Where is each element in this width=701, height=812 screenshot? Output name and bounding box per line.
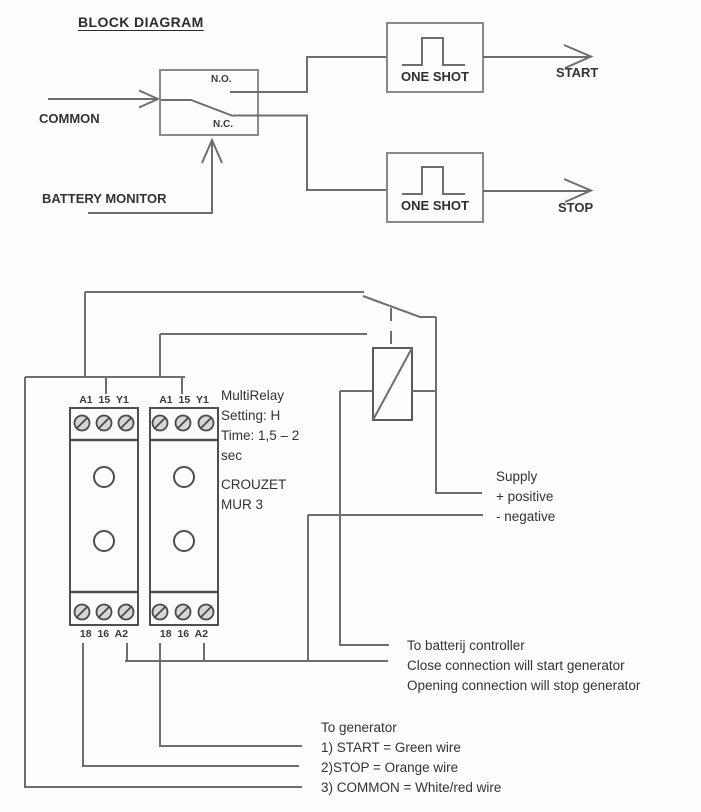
- module1-bottom-terminals: 18 16 A2: [70, 628, 138, 640]
- supply-line: - negative: [496, 507, 555, 527]
- common-label: COMMON: [39, 111, 100, 126]
- module-hole: [174, 467, 194, 487]
- terminal-block-separators: [70, 440, 218, 592]
- page-title: BLOCK DIAGRAM: [78, 14, 204, 30]
- note-line: Setting: H: [221, 406, 299, 426]
- terminal-drops: [106, 377, 182, 394]
- stop-label: STOP: [558, 200, 593, 215]
- contact-box: [160, 70, 258, 135]
- supply-labels: Supply + positive - negative: [496, 467, 555, 527]
- battery-line: Close connection will start generator: [407, 656, 640, 676]
- module2-bottom-terminals: 18 16 A2: [150, 628, 218, 640]
- wire-a1-module2: [160, 334, 367, 377]
- relay-switch-blade: [363, 296, 436, 317]
- no-contact-label: N.O.: [211, 74, 232, 85]
- module-hole: [94, 467, 114, 487]
- scanned-relay-diagram: BLOCK DIAGRAM N.O. N.C. COMMON BATTERY M…: [0, 0, 701, 812]
- note-line: MUR 3: [221, 495, 299, 515]
- module-hole: [174, 531, 194, 551]
- a2-drops: [127, 643, 204, 661]
- start-green-wire: [160, 643, 302, 746]
- screw-terminals: [75, 416, 214, 620]
- no-wire: [230, 57, 387, 92]
- generator-line: 2)STOP = Orange wire: [321, 758, 501, 778]
- note-line: MultiRelay: [221, 386, 299, 406]
- generator-labels: To generator 1) START = Green wire 2)STO…: [321, 718, 501, 798]
- start-label: START: [556, 65, 598, 80]
- one-shot-stop-label: ONE SHOT: [387, 198, 483, 213]
- relay-note: MultiRelay Setting: H Time: 1,5 – 2 sec …: [221, 386, 299, 515]
- generator-line: To generator: [321, 718, 501, 738]
- note-line: sec: [221, 446, 299, 466]
- module1-top-terminals: A1 15 Y1: [70, 394, 138, 406]
- battery-controller-wire: [340, 391, 389, 645]
- pulse-icon: [402, 167, 465, 194]
- battery-monitor-label: BATTERY MONITOR: [42, 191, 166, 206]
- screw-slots: [77, 418, 211, 617]
- nc-contact-label: N.C.: [213, 119, 233, 130]
- contact-blade: [161, 100, 233, 116]
- pulse-icon: [402, 38, 465, 65]
- battery-line: Opening connection will stop generator: [407, 676, 640, 696]
- relay-coil-diagonal: [373, 348, 412, 420]
- relay-modules: [70, 408, 218, 625]
- module-hole: [94, 531, 114, 551]
- supply-line: + positive: [496, 487, 555, 507]
- supply-line: Supply: [496, 467, 555, 487]
- one-shot-start-label: ONE SHOT: [387, 69, 483, 84]
- battery-line: To batterij controller: [407, 636, 640, 656]
- supply-positive-wire: [436, 317, 482, 493]
- nc-wire: [233, 116, 387, 191]
- note-line: CROUZET: [221, 475, 299, 495]
- module2-top-terminals: A1 15 Y1: [150, 394, 218, 406]
- generator-line: 1) START = Green wire: [321, 738, 501, 758]
- generator-line: 3) COMMON = White/red wire: [321, 778, 501, 798]
- note-line: Time: 1,5 – 2: [221, 426, 299, 446]
- battery-controller-labels: To batterij controller Close connection …: [407, 636, 640, 696]
